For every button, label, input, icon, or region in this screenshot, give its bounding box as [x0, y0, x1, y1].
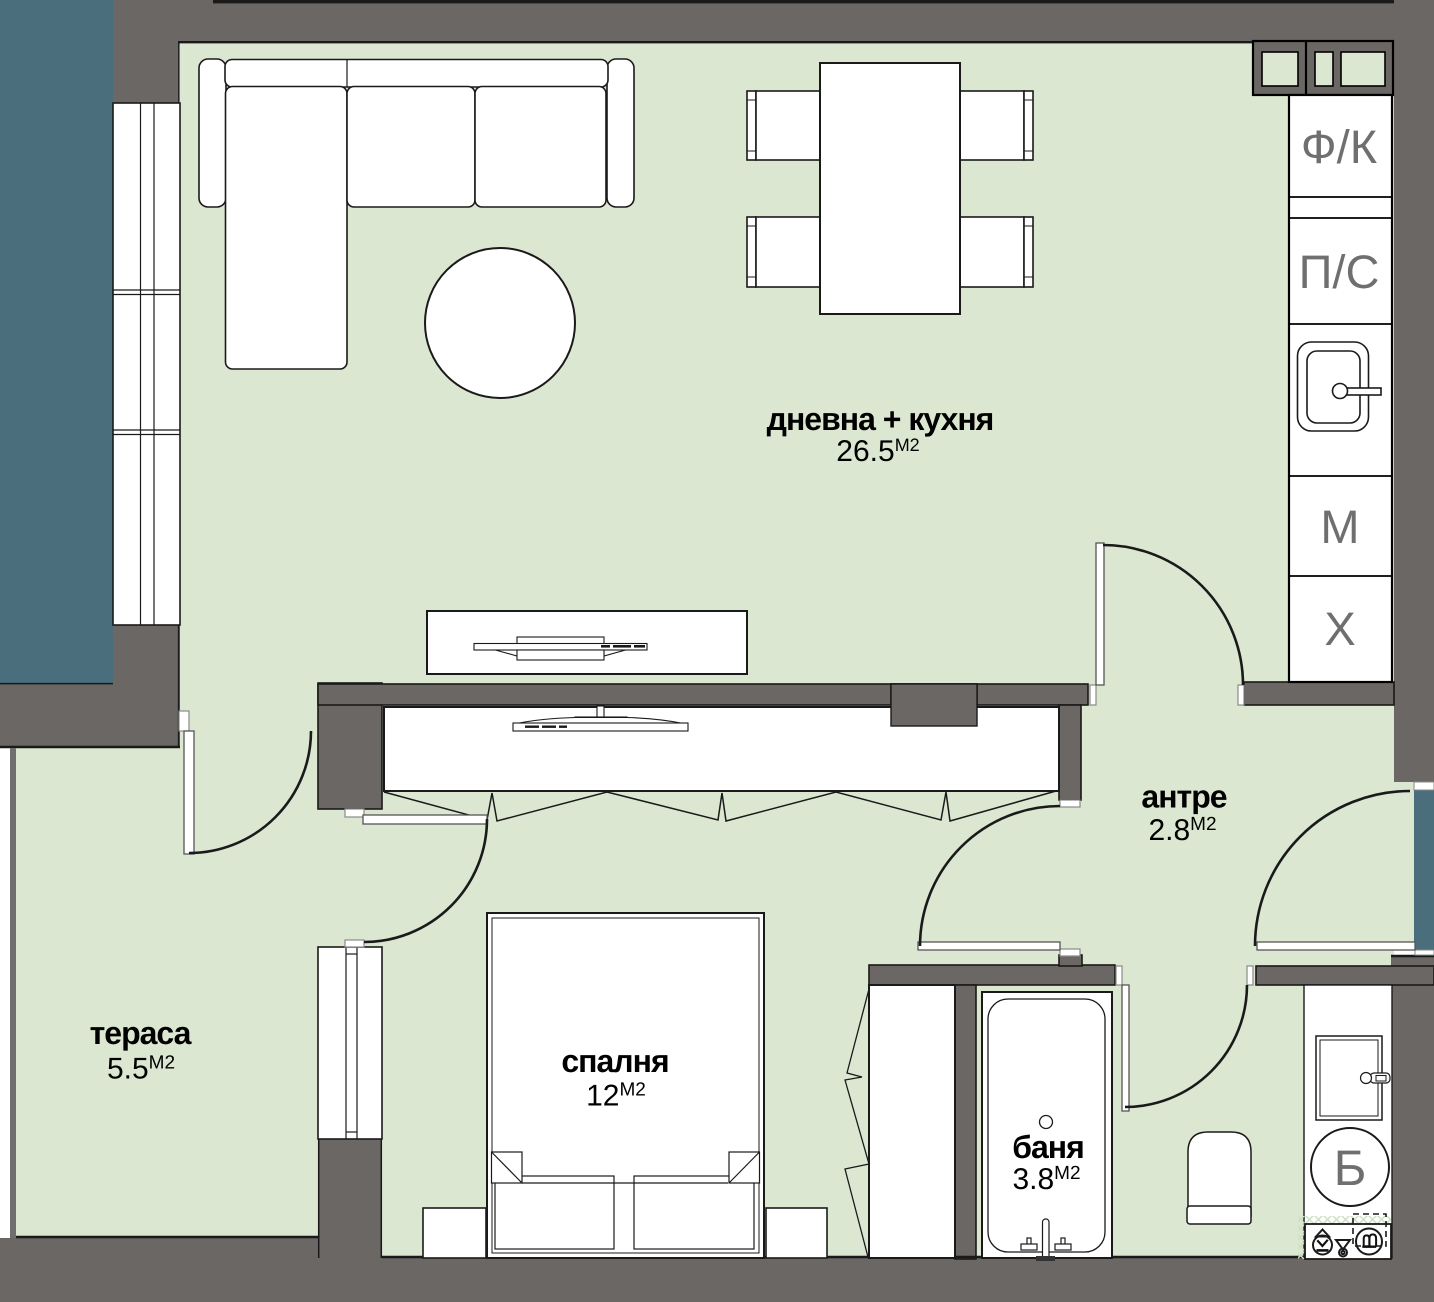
svg-text:антре: антре — [1141, 779, 1226, 815]
svg-text:спалня: спалня — [561, 1043, 668, 1079]
svg-text:тераса: тераса — [90, 1015, 192, 1051]
svg-text:П/С: П/С — [1299, 245, 1380, 298]
svg-text:Х: Х — [1324, 602, 1355, 655]
svg-text:М: М — [1320, 500, 1359, 553]
svg-text:Б: Б — [1334, 1140, 1367, 1196]
svg-text:баня: баня — [1012, 1129, 1084, 1165]
svg-text:дневна + кухня: дневна + кухня — [767, 401, 994, 437]
svg-text:Ф/К: Ф/К — [1301, 120, 1378, 173]
